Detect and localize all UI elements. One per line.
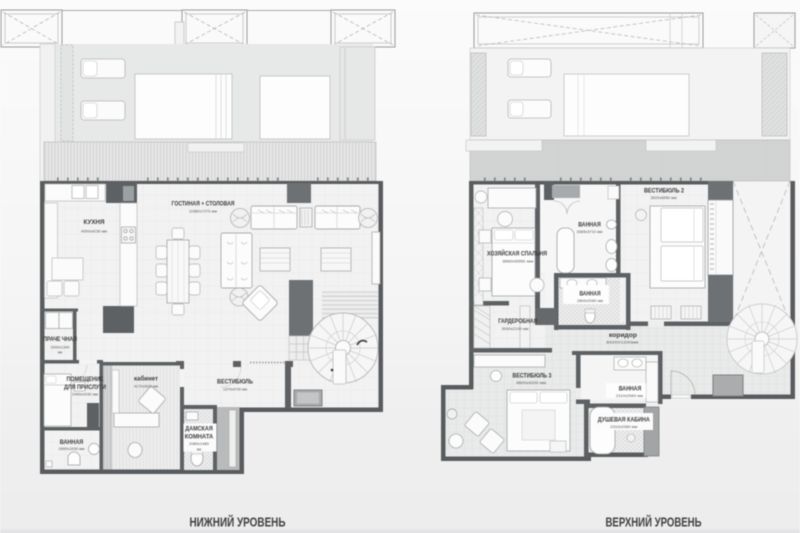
svg-text:4170х3430 мм: 4170х3430 мм <box>134 385 158 389</box>
svg-text:КУХНЯ: КУХНЯ <box>84 220 105 226</box>
svg-text:2800х2060 мм: 2800х2060 мм <box>577 299 603 303</box>
svg-text:ВЕСТИБЮЛЬ 2: ВЕСТИБЮЛЬ 2 <box>644 188 684 195</box>
svg-text:ВАННАЯ: ВАННАЯ <box>580 292 601 298</box>
svg-text:коридор: коридор <box>609 333 637 339</box>
svg-text:3365х3710 мм: 3365х3710 мм <box>577 230 603 234</box>
svg-text:2310х2060 мм: 2310х2060 мм <box>610 425 637 429</box>
svg-text:кабинет: кабинет <box>134 376 158 383</box>
svg-text:ВАННАЯ: ВАННАЯ <box>578 223 601 229</box>
svg-text:3660х5950 мм: 3660х5950 мм <box>502 260 533 264</box>
svg-text:4800х4200 мм: 4800х4200 мм <box>516 381 546 385</box>
svg-text:ГОСТИНАЯ + СТОЛОВАЯ: ГОСТИНАЯ + СТОЛОВАЯ <box>172 201 235 208</box>
svg-text:2690х1630 мм: 2690х1630 мм <box>59 447 85 451</box>
svg-text:2000х1340: 2000х1340 <box>51 346 70 350</box>
svg-text:ДУШЕВАЯ КАБИНА: ДУШЕВАЯ КАБИНА <box>598 417 650 424</box>
svg-text:4000х4230 мм: 4000х4230 мм <box>81 230 107 234</box>
svg-text:ГАРДЕРОБНАЯ: ГАРДЕРОБНАЯ <box>498 319 537 325</box>
svg-text:2080х1480: 2080х1480 <box>189 442 209 446</box>
svg-text:ДЛЯ ПРИСЛУГИ: ДЛЯ ПРИСЛУГИ <box>64 385 106 391</box>
svg-text:ХОЗЯЙСКАЯ СПАЛЬНЯ: ХОЗЯЙСКАЯ СПАЛЬНЯ <box>487 250 547 258</box>
svg-text:ВЕРХНИЙ УРОВЕНЬ: ВЕРХНИЙ УРОВЕНЬ <box>606 515 702 530</box>
svg-text:НИЖНИЙ УРОВЕНЬ: НИЖНИЙ УРОВЕНЬ <box>190 515 286 530</box>
svg-text:ПРАЧЕ ЧНАЯ: ПРАЧЕ ЧНАЯ <box>43 337 77 343</box>
svg-text:ДАМСКАЯ: ДАМСКАЯ <box>185 427 213 433</box>
svg-text:2110х2060 мм: 2110х2060 мм <box>616 394 643 398</box>
svg-text:ВЕСТИБЮЛЬ 3: ВЕСТИБЮЛЬ 3 <box>513 373 552 380</box>
svg-text:мм: мм <box>197 448 201 452</box>
svg-text:ВЕСТИБЮЛЬ: ВЕСТИБЮЛЬ <box>217 379 253 386</box>
svg-text:ПОМЕЩЕНИЕ: ПОМЕЩЕНИЕ <box>67 377 104 383</box>
svg-text:мм: мм <box>58 351 62 355</box>
svg-text:3920х6950 мм: 3920х6950 мм <box>651 196 677 200</box>
svg-text:КОМНАТА: КОМНАТА <box>185 435 214 441</box>
svg-text:ВАННАЯ: ВАННАЯ <box>619 387 642 393</box>
svg-text:3930х2100 мм: 3930х2100 мм <box>502 327 529 331</box>
svg-text:11580х7270 мм: 11580х7270 мм <box>189 210 217 214</box>
svg-text:2490х2430 мм: 2490х2430 мм <box>72 393 98 397</box>
svg-text:ВАННАЯ: ВАННАЯ <box>60 440 84 446</box>
svg-text:1370х4700 мм: 1370х4700 мм <box>223 388 247 392</box>
svg-text:8420Х1200мм: 8420Х1200мм <box>606 341 638 345</box>
